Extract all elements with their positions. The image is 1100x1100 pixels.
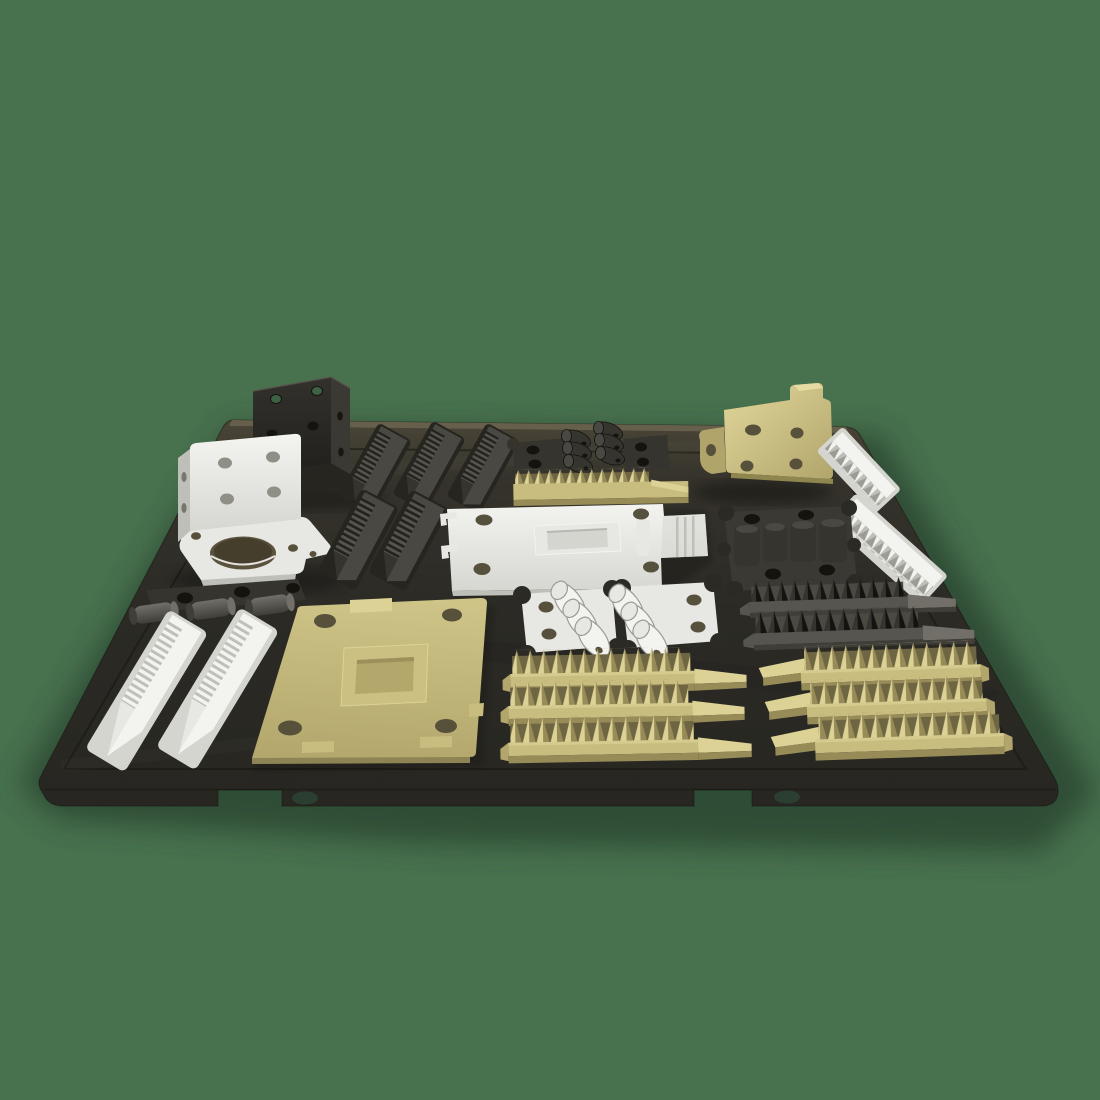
corner-hole: [314, 614, 336, 628]
side-slot: [181, 503, 186, 513]
side-hole: [338, 448, 344, 457]
base-hole: [191, 532, 201, 540]
clip-plate-hole: [529, 460, 542, 469]
bracket-shadow: [692, 480, 832, 504]
clip-plate-hole: [635, 443, 647, 452]
render-viewport: [0, 0, 1100, 1100]
wing-groove: [692, 516, 695, 556]
edge-tab: [302, 741, 334, 753]
clip-plate-hole: [691, 622, 706, 633]
corner-scallop: [841, 500, 857, 516]
corner-hole: [633, 509, 649, 520]
corner-scallop: [704, 574, 722, 592]
wing-groove: [676, 517, 679, 557]
build-plate-render: [0, 0, 1100, 1100]
bolt-hole: [741, 461, 754, 472]
base-hole: [310, 551, 317, 557]
clamp-hole: [765, 569, 781, 580]
clip-plate-hole: [539, 602, 554, 613]
bolt-hole: [790, 459, 803, 470]
clamp-hole: [798, 510, 814, 520]
corner-hole: [476, 515, 493, 526]
bracket-face: [190, 434, 301, 531]
plate-finger-hole-left: [292, 792, 318, 805]
clip-plate-hole: [687, 595, 702, 606]
flange-hole: [706, 444, 716, 456]
face-hole: [267, 487, 281, 498]
corner-hole: [442, 609, 462, 622]
clip-plate: [623, 435, 670, 472]
corner-scallop: [718, 505, 734, 521]
edge-tab: [469, 703, 484, 717]
plate-ridge: [636, 519, 650, 556]
edge-scallop: [847, 538, 861, 552]
wing-groove: [684, 517, 687, 557]
clamp-hole: [744, 514, 760, 524]
face-hole: [220, 494, 234, 505]
bolt-hole: [308, 422, 319, 431]
clip-plate-hole: [542, 629, 557, 640]
face-hole: [218, 458, 232, 469]
corner-hole: [435, 719, 457, 733]
bracket-side: [331, 377, 350, 474]
hinge-hole: [286, 583, 300, 593]
base-hole: [288, 544, 298, 552]
slot-hole: [745, 425, 761, 436]
bolt-hole: [791, 428, 804, 439]
clip-plate-hole: [527, 446, 540, 455]
clamp-hole: [819, 565, 835, 576]
corner-hole: [474, 563, 491, 575]
edge-scallop: [717, 542, 731, 556]
corner-hole: [278, 721, 302, 736]
edge-tab: [350, 598, 392, 613]
corner-scallop: [727, 581, 743, 597]
bracket-left-face: [178, 449, 190, 542]
clip-plate-hole: [637, 458, 649, 467]
edge-tab: [420, 736, 452, 748]
corner-scallop: [507, 438, 519, 450]
through-hole: [312, 387, 323, 396]
side-slot: [181, 472, 186, 482]
plate-front-face: [252, 757, 470, 764]
plate-finger-hole-right: [774, 791, 800, 804]
part-white-base-plate: [440, 504, 712, 596]
hinge-hole: [177, 593, 193, 604]
corner-scallop: [710, 633, 728, 651]
corner-scallop: [513, 586, 531, 604]
through-hole: [271, 395, 282, 404]
face-hole: [266, 452, 280, 463]
hinge-hole: [234, 587, 250, 598]
corner-hole: [643, 562, 659, 573]
side-hole: [337, 412, 343, 421]
